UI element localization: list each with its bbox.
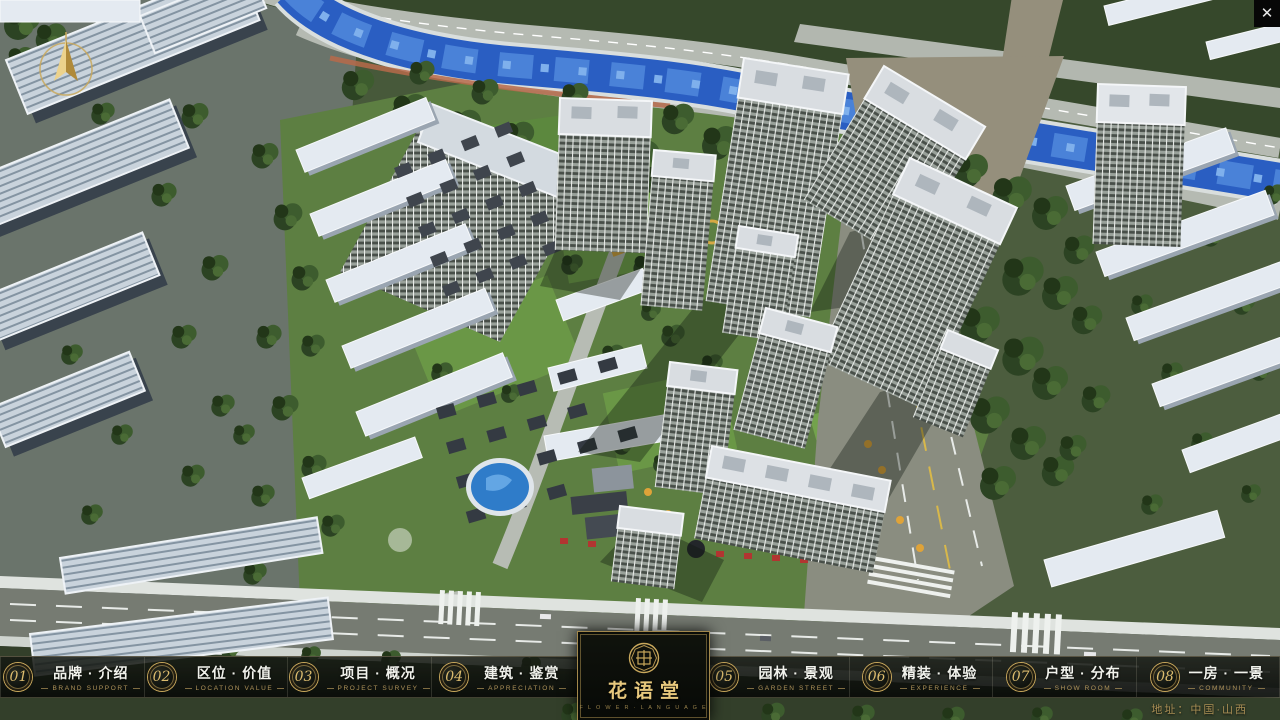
- compass-north-icon: [34, 32, 98, 100]
- nav-label-en: EXPERIENCE: [900, 685, 980, 692]
- nav-label-en: LOCATION VALUE: [185, 685, 285, 692]
- nav-label-zh: 品牌 · 介绍: [53, 663, 128, 683]
- nav-label-zh: 一房 · 一景: [1189, 663, 1264, 683]
- nav-item-project[interactable]: 03 项目 · 概况 PROJECT SURVEY: [287, 657, 431, 697]
- nav-label-en: BRAND SUPPORT: [41, 685, 140, 692]
- nav-label-zh: 精装 · 体验: [902, 663, 977, 683]
- nav-label-en: SHOW ROOM: [1044, 685, 1123, 692]
- nav-item-garden[interactable]: 05 园林 · 景观 GARDEN STREET: [706, 657, 849, 697]
- aerial-render: [0, 0, 1280, 720]
- nav-badge: 04: [440, 663, 468, 691]
- nav-item-location[interactable]: 02 区位 · 价值 LOCATION VALUE: [144, 657, 288, 697]
- close-button[interactable]: ✕: [1254, 0, 1280, 27]
- nav-badge: 03: [290, 663, 318, 691]
- nav-item-architecture[interactable]: 04 建筑 · 鉴赏 APPRECIATION: [431, 657, 575, 697]
- nav-label-en: APPRECIATION: [477, 685, 566, 692]
- nav-item-floorplan[interactable]: 07 户型 · 分布 SHOW ROOM: [992, 657, 1135, 697]
- nav-group-right: 05 园林 · 景观 GARDEN STREET 06 精装 · 体验 EXPE…: [706, 657, 1280, 697]
- presentation-stage: ✕ 01 品牌 · 介绍 BRAND SUPPORT 02 区位 · 价值 LO…: [0, 0, 1280, 720]
- nav-badge: 05: [710, 663, 738, 691]
- nav-label-zh: 区位 · 价值: [197, 663, 272, 683]
- nav-label-en: GARDEN STREET: [747, 685, 845, 692]
- logo-subtitle: F L O W E R · L A N G U A G E: [580, 705, 708, 711]
- nav-label-zh: 项目 · 概况: [340, 663, 415, 683]
- nav-label-zh: 园林 · 景观: [758, 663, 833, 683]
- nav-badge: 02: [148, 663, 176, 691]
- nav-badge: 07: [1007, 663, 1035, 691]
- logo-seal-icon: [628, 642, 660, 674]
- nav-badge: 06: [863, 663, 891, 691]
- project-address: 地址：中国·山西: [1151, 701, 1248, 717]
- nav-item-interior[interactable]: 06 精装 · 体验 EXPERIENCE: [849, 657, 992, 697]
- nav-label-zh: 建筑 · 鉴赏: [484, 663, 559, 683]
- nav-label-en: COMMUNITY: [1188, 685, 1264, 692]
- nav-group-left: 01 品牌 · 介绍 BRAND SUPPORT 02 区位 · 价值 LOCA…: [0, 657, 575, 697]
- nav-label-en: PROJECT SURVEY: [327, 685, 430, 692]
- nav-label-zh: 户型 · 分布: [1045, 663, 1120, 683]
- nav-badge: 08: [1151, 663, 1179, 691]
- nav-item-view[interactable]: 08 一房 · 一景 COMMUNITY: [1136, 657, 1280, 697]
- nav-badge: 01: [4, 663, 32, 691]
- project-logo[interactable]: 花语堂 F L O W E R · L A N G U A G E: [577, 631, 710, 720]
- nav-item-brand[interactable]: 01 品牌 · 介绍 BRAND SUPPORT: [0, 657, 144, 697]
- logo-name: 花语堂: [601, 676, 686, 703]
